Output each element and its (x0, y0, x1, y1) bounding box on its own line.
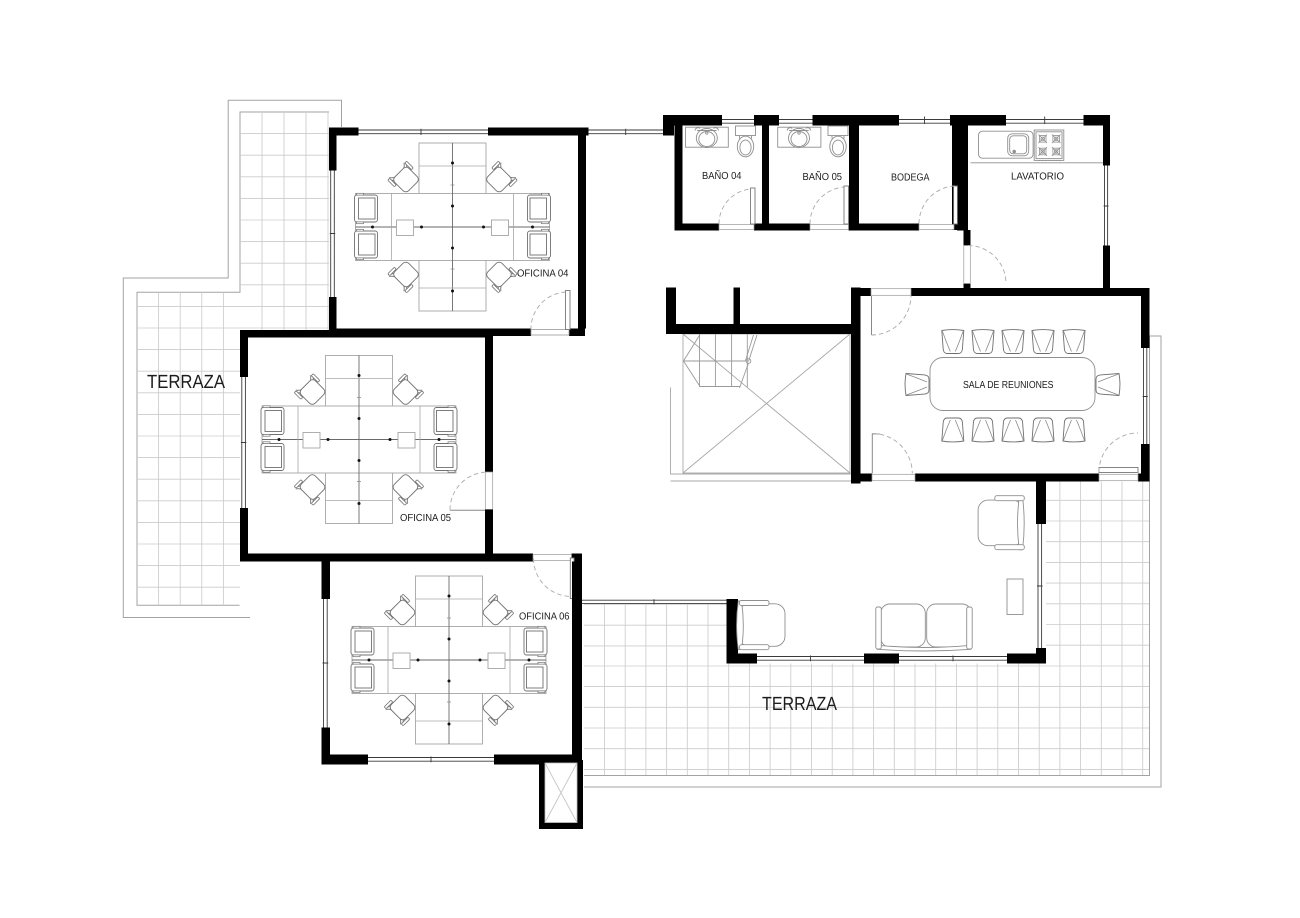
svg-text:LAVATORIO: LAVATORIO (1011, 172, 1064, 183)
svg-text:BODEGA: BODEGA (891, 173, 930, 184)
svg-text:OFICINA 05: OFICINA 05 (400, 513, 451, 524)
svg-text:OFICINA 06: OFICINA 06 (519, 612, 570, 623)
svg-text:TERRAZA: TERRAZA (762, 694, 837, 715)
svg-text:SALA DE REUNIONES: SALA DE REUNIONES (963, 380, 1054, 391)
svg-text:BAÑO 04: BAÑO 04 (702, 170, 742, 182)
svg-text:TERRAZA: TERRAZA (147, 372, 225, 393)
svg-text:OFICINA 04: OFICINA 04 (517, 269, 569, 280)
svg-text:BAÑO 05: BAÑO 05 (803, 171, 843, 183)
